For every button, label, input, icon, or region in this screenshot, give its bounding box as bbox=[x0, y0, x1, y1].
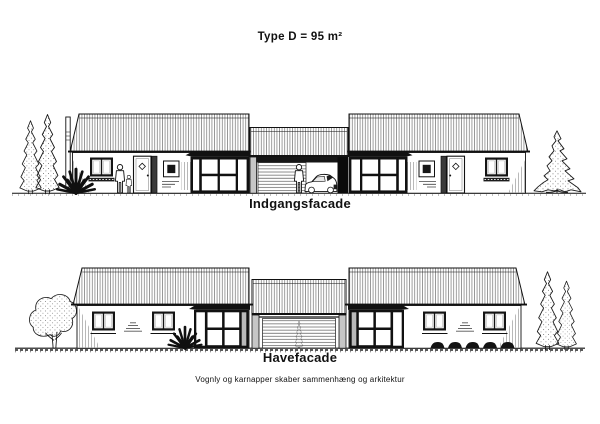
right-house-garden bbox=[345, 268, 527, 348]
drawing-sheet: Type D = 95 m² Indgangsfacade Havefacade… bbox=[0, 0, 600, 424]
shed-post bbox=[252, 315, 259, 348]
center-shed bbox=[252, 280, 346, 349]
car-figure bbox=[305, 174, 337, 193]
conifer-tree bbox=[36, 115, 59, 195]
deciduous-tree bbox=[534, 131, 581, 193]
garden-elevation bbox=[15, 268, 585, 352]
right-house-entrance bbox=[347, 114, 530, 193]
conifer-tree bbox=[536, 272, 559, 350]
elevation-drawings bbox=[0, 0, 600, 424]
carport bbox=[250, 128, 348, 194]
carport-post bbox=[250, 157, 257, 193]
deciduous-tree bbox=[29, 295, 76, 348]
conifer-tree bbox=[557, 281, 577, 350]
left-house-garden bbox=[71, 268, 253, 348]
left-house-entrance bbox=[68, 114, 251, 193]
shed-post bbox=[339, 315, 346, 348]
entrance-elevation bbox=[12, 114, 586, 195]
